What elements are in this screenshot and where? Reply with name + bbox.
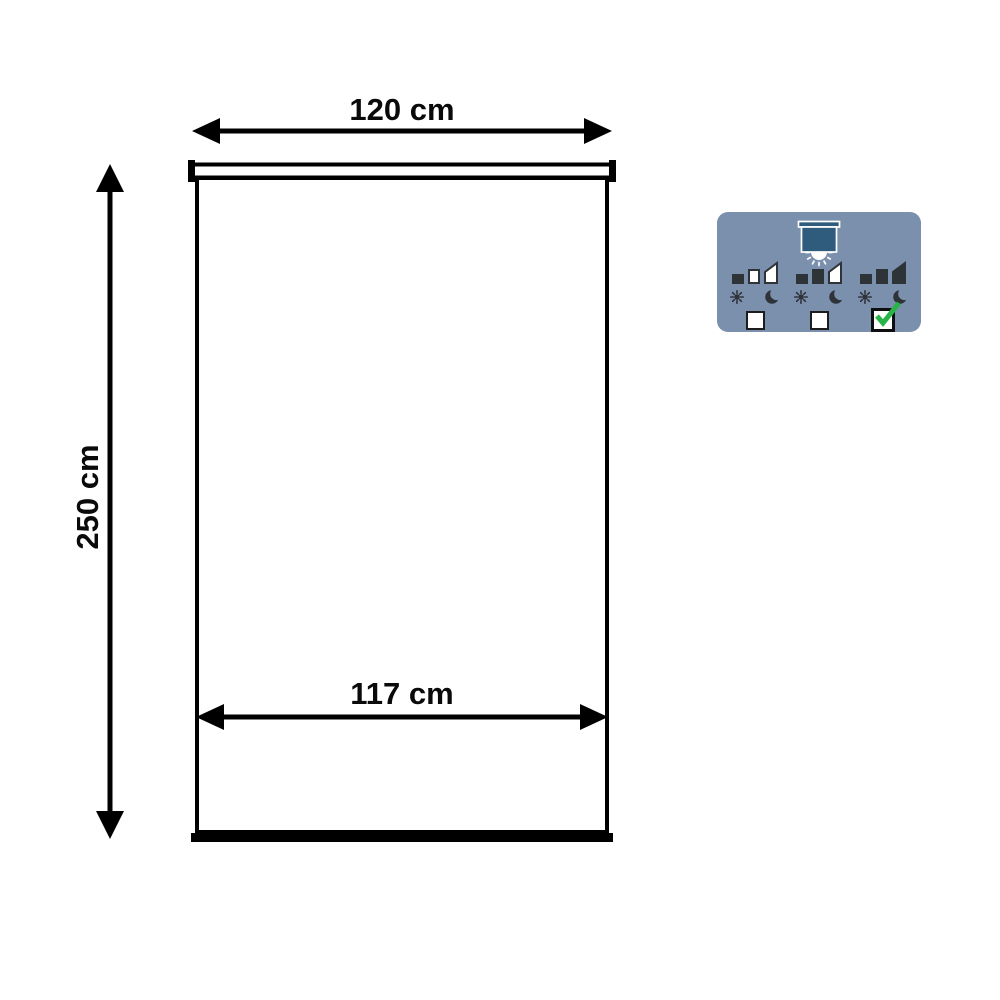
moon-icon bbox=[827, 288, 845, 306]
unchecked-checkbox-icon bbox=[746, 311, 765, 330]
checkmark-icon bbox=[872, 302, 902, 332]
opacity-options-row bbox=[717, 261, 921, 332]
light-level-bars-icon bbox=[795, 261, 843, 285]
blind-rail-right-cap bbox=[609, 160, 616, 182]
roller-blind-light-icon bbox=[795, 220, 843, 264]
sun-icon bbox=[793, 289, 809, 305]
sun-icon bbox=[729, 289, 745, 305]
sun-icon bbox=[857, 289, 873, 305]
height-dimension-label: 250 cm bbox=[70, 347, 106, 647]
opacity-option-semi-darkening bbox=[787, 261, 851, 332]
light-glow-icon bbox=[811, 252, 827, 260]
light-level-bars-icon bbox=[731, 261, 779, 285]
blind-top-rail bbox=[193, 165, 612, 178]
light-level-bars-icon bbox=[859, 261, 907, 285]
width-dimension-label: 120 cm bbox=[200, 92, 604, 128]
blind-fabric-panel bbox=[197, 178, 607, 832]
product-dimension-diagram: 120 cm 250 cm 117 cm bbox=[0, 0, 1000, 1000]
blind-rail-left-cap bbox=[188, 160, 195, 182]
fabric-width-dimension-label: 117 cm bbox=[200, 676, 604, 712]
roller-blind-outline bbox=[188, 160, 616, 842]
opacity-option-light-filtering bbox=[723, 261, 787, 332]
diagram-graphics bbox=[0, 0, 1000, 1000]
day-night-row bbox=[729, 288, 781, 306]
arrowhead-down bbox=[96, 811, 124, 839]
blind-bottom-bar bbox=[191, 833, 613, 842]
opacity-option-darkening bbox=[851, 261, 915, 332]
checked-checkbox-icon bbox=[871, 308, 895, 332]
day-night-row bbox=[793, 288, 845, 306]
arrowhead-up bbox=[96, 164, 124, 192]
opacity-info-badge bbox=[717, 212, 921, 332]
unchecked-checkbox-icon bbox=[810, 311, 829, 330]
moon-icon bbox=[763, 288, 781, 306]
